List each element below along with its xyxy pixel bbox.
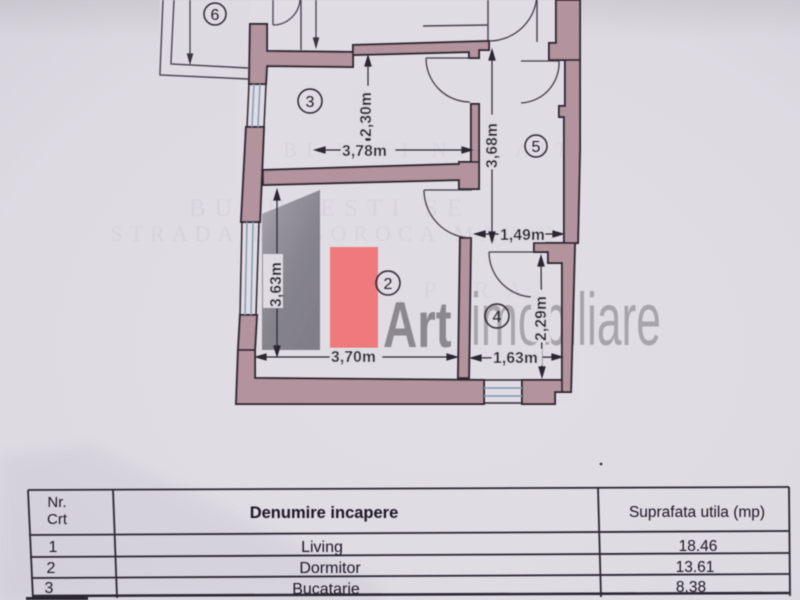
svg-text:2,30m: 2,30m [358, 92, 375, 137]
svg-text:4: 4 [493, 309, 502, 326]
svg-text:18.46: 18.46 [679, 538, 718, 555]
svg-text:5: 5 [532, 139, 541, 156]
svg-text:BUCURESTI SE: BUCURESTI SE [189, 195, 471, 222]
svg-text:1,49m: 1,49m [500, 227, 545, 244]
svg-text:13.61: 13.61 [676, 559, 715, 576]
svg-text:3,63m: 3,63m [268, 262, 285, 307]
svg-text:3,78m: 3,78m [342, 143, 387, 160]
svg-text:2,29m: 2,29m [533, 296, 550, 341]
svg-text:6: 6 [211, 7, 220, 24]
svg-text:2: 2 [384, 276, 393, 293]
svg-text:Denumire incapere: Denumire incapere [250, 504, 399, 522]
svg-text:3,68m: 3,68m [484, 123, 501, 168]
svg-text:Art: Art [383, 289, 452, 362]
svg-text:Suprafata utila (mp): Suprafata utila (mp) [629, 504, 765, 521]
svg-text:1,63m: 1,63m [493, 350, 538, 367]
svg-text:3,70m: 3,70m [331, 349, 376, 366]
svg-text:3: 3 [306, 94, 315, 111]
svg-text:8.38: 8.38 [676, 579, 706, 596]
